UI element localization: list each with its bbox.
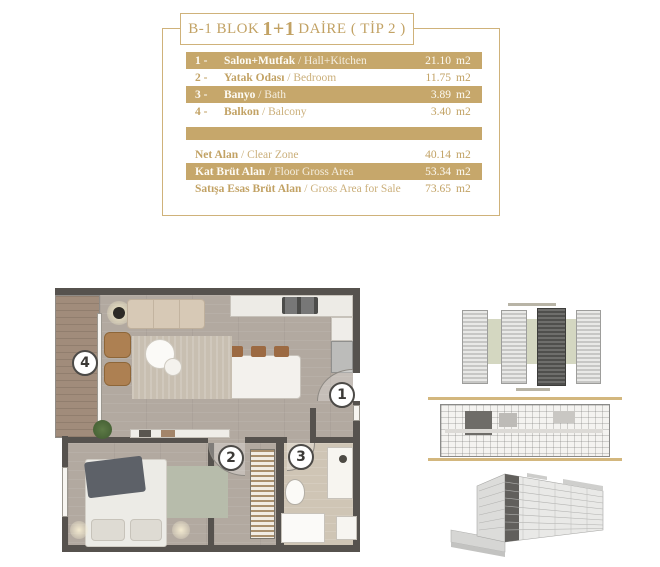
room-name: Balkon / Balcony — [224, 106, 405, 118]
summary-name: Kat Brüt Alan / Floor Gross Area — [186, 166, 405, 178]
table-separator-bar — [186, 127, 482, 140]
wall-entry-stub — [310, 408, 316, 443]
room-name: Salon+Mutfak / Hall+Kitchen — [224, 55, 405, 67]
badge-label: 1 — [337, 387, 347, 403]
badge-label: 4 — [80, 355, 90, 371]
building-block — [501, 310, 527, 384]
floor-plan: 1 2 3 4 — [55, 283, 365, 559]
plate-corridor — [445, 429, 603, 433]
stool-icon — [274, 346, 289, 357]
floor-plate-plan — [440, 404, 610, 457]
room-area-value: 11.75 — [405, 72, 451, 84]
room-name-en: / Hall+Kitchen — [295, 55, 367, 67]
room-name: Yatak Odası / Bedroom — [224, 72, 405, 84]
building-block — [576, 310, 601, 384]
table-row: 2 - Yatak Odası / Bedroom 11.75 m2 — [186, 69, 482, 86]
room-name-tr: Banyo — [224, 89, 255, 101]
room-name: Banyo / Bath — [224, 89, 405, 101]
summary-name-en: / Floor Gross Area — [265, 166, 353, 178]
summary-row-net: Net Alan / Clear Zone 40.14 m2 — [186, 146, 482, 163]
summary-name-tr: Satışa Esas Brüt Alan — [195, 183, 301, 195]
room-name-tr: Salon+Mutfak — [224, 55, 295, 67]
room-area-value: 21.10 — [405, 55, 451, 67]
room-number: 3 - — [186, 89, 224, 101]
room-badge-4: 4 — [72, 350, 98, 376]
pillow-icon — [130, 519, 162, 541]
room-badge-1: 1 — [329, 382, 355, 408]
room-area-unit: m2 — [451, 106, 482, 118]
summary-area-value: 73.65 — [405, 183, 451, 195]
summary-area-unit: m2 — [451, 183, 482, 195]
summary-name-en: / Gross Area for Sale — [301, 183, 400, 195]
wall-mid-right — [315, 437, 353, 443]
pillow-icon — [91, 519, 125, 541]
summary-name-tr: Net Alan — [195, 149, 238, 161]
toilet-icon — [285, 479, 305, 505]
summary-area-unit: m2 — [451, 166, 482, 178]
kitchen-tall-cabinet — [331, 317, 353, 341]
bed-throw — [84, 456, 146, 499]
washer-icon — [336, 516, 357, 540]
room-name-en: / Bath — [255, 89, 286, 101]
nightstand-glow — [70, 521, 88, 539]
badge-label: 3 — [296, 449, 306, 465]
room-area-value: 3.40 — [405, 106, 451, 118]
nightstand-glow — [172, 521, 190, 539]
room-area-unit: m2 — [451, 72, 482, 84]
badge-label: 2 — [226, 450, 236, 466]
area-table: 1 - Salon+Mutfak / Hall+Kitchen 21.10 m2… — [186, 52, 482, 197]
room-name-tr: Balkon — [224, 106, 259, 118]
title-suffix: DAİRE ( TİP 2 ) — [298, 21, 406, 38]
floorplan-sheet: B-1 BLOK 1+1 DAİRE ( TİP 2 ) 1 - Salon+M… — [0, 0, 660, 567]
title-unit-type: 1+1 — [262, 18, 295, 41]
title-block: B-1 BLOK — [188, 21, 259, 38]
building-block-highlighted — [537, 308, 566, 386]
sofa-icon — [127, 299, 205, 329]
wall-right-upper — [353, 288, 360, 373]
plate-unit-shade — [553, 411, 575, 423]
bedroom-window — [62, 467, 68, 517]
gold-divider-top — [428, 397, 622, 400]
floor-lamp-icon — [113, 307, 125, 319]
building-rendering — [443, 464, 627, 560]
armchair-icon — [104, 332, 131, 358]
room-number: 1 - — [186, 55, 224, 67]
caption-line — [508, 303, 556, 306]
caption-line — [516, 388, 550, 391]
plate-unit-shade — [499, 413, 517, 427]
room-badge-3: 3 — [288, 444, 314, 470]
gold-divider-bottom — [428, 458, 622, 461]
summary-row-sale-gross: Satışa Esas Brüt Alan / Gross Area for S… — [186, 180, 482, 197]
table-row: 3 - Banyo / Bath 3.89 m2 — [186, 86, 482, 103]
tv-console — [130, 429, 230, 438]
room-name-en: / Bedroom — [284, 72, 336, 84]
room-number: 2 - — [186, 72, 224, 84]
room-name-tr: Yatak Odası — [224, 72, 284, 84]
armchair-icon — [104, 362, 131, 386]
summary-area-unit: m2 — [451, 149, 482, 161]
stool-icon — [251, 346, 266, 357]
building-block — [462, 310, 488, 384]
summary-row-gross-floor: Kat Brüt Alan / Floor Gross Area 53.34 m… — [186, 163, 482, 180]
plant-icon — [93, 420, 112, 439]
room-number: 4 - — [186, 106, 224, 118]
page-title: B-1 BLOK 1+1 DAİRE ( TİP 2 ) — [180, 13, 414, 45]
room-badge-2: 2 — [218, 445, 244, 471]
entry-window — [353, 405, 360, 421]
summary-name-tr: Kat Brüt Alan — [195, 166, 265, 178]
kitchen-sink-icon — [282, 297, 318, 314]
wall-top — [55, 288, 360, 295]
summary-area-value: 53.34 — [405, 166, 451, 178]
table-row: 1 - Salon+Mutfak / Hall+Kitchen 21.10 m2 — [186, 52, 482, 69]
shower-icon — [281, 513, 325, 543]
table-row: 4 - Balkon / Balcony 3.40 m2 — [186, 103, 482, 120]
room-area-value: 3.89 — [405, 89, 451, 101]
room-area-unit: m2 — [451, 55, 482, 67]
balcony-sliding-door — [97, 313, 102, 423]
wardrobe-icon — [250, 449, 275, 539]
kitchen-island — [222, 355, 301, 399]
vanity-plant-icon — [339, 455, 347, 463]
summary-name: Net Alan / Clear Zone — [186, 149, 405, 161]
summary-area-value: 40.14 — [405, 149, 451, 161]
side-table-icon — [164, 358, 182, 376]
room-area-unit: m2 — [451, 89, 482, 101]
room-name-en: / Balcony — [259, 106, 306, 118]
summary-name: Satışa Esas Brüt Alan / Gross Area for S… — [186, 183, 405, 195]
site-key-plan — [440, 295, 630, 395]
summary-name-en: / Clear Zone — [238, 149, 298, 161]
